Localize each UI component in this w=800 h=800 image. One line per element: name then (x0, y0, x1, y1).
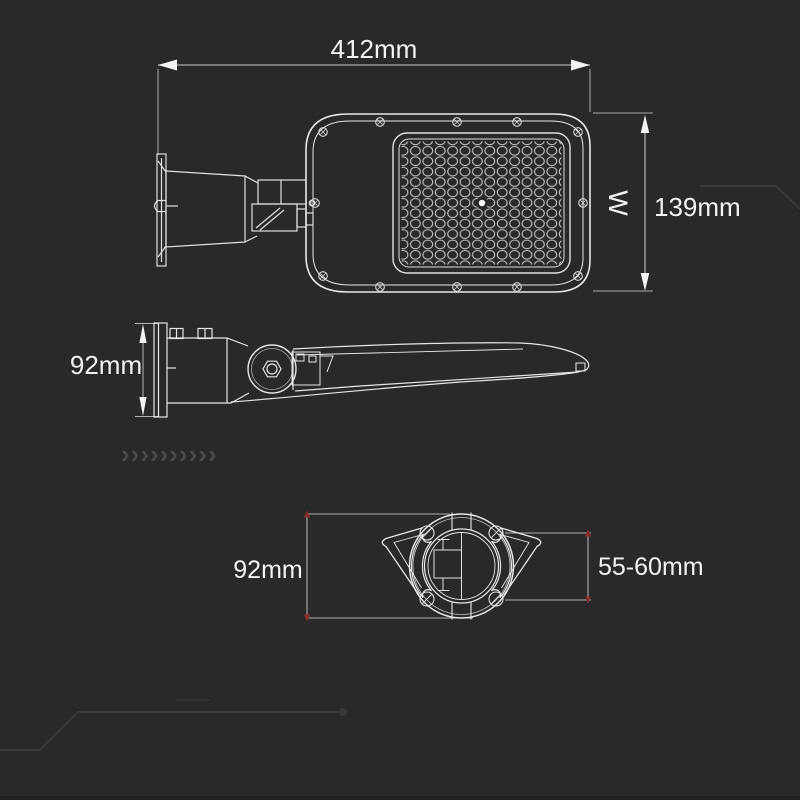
dimension-55-60 (505, 530, 591, 604)
side-view-structure (154, 323, 589, 417)
mounting-bracket-top-view (155, 154, 315, 266)
decor-trace-node (339, 708, 347, 716)
dimension-412 (158, 60, 590, 156)
decor-trace-bottom-left (0, 712, 338, 750)
bottom-view-drawing: 92mm 55-60mm (235, 500, 710, 640)
clamp-width-label: 92mm (233, 556, 302, 584)
dimension-92-bottom (304, 511, 473, 622)
bottom-edge-strip (0, 796, 800, 800)
arrow-up-icon (139, 324, 146, 343)
chevron-decoration: ›››››››››› (121, 441, 218, 467)
arrow-right-icon (571, 60, 590, 71)
led-panel (393, 133, 570, 273)
height-dimension-label: 139mm (654, 192, 741, 222)
street-light-dimension-drawing: 412mm 139mm W (0, 0, 800, 800)
top-view-drawing: 412mm 139mm W (140, 28, 800, 312)
hinge-joint (248, 345, 296, 393)
arrow-up-icon (641, 115, 650, 133)
side-view-drawing: 92mm (60, 315, 625, 427)
length-dimension-label: 412mm (331, 34, 418, 64)
clamp-keyway (434, 533, 462, 599)
pole-diameter-label: 55-60mm (598, 553, 704, 581)
center-dot (479, 200, 485, 206)
side-height-label: 92mm (70, 350, 142, 380)
width-symbol-label: W (603, 190, 633, 216)
arrow-down-icon (139, 397, 146, 416)
arrow-left-icon (158, 60, 177, 71)
arrow-down-icon (641, 273, 650, 291)
